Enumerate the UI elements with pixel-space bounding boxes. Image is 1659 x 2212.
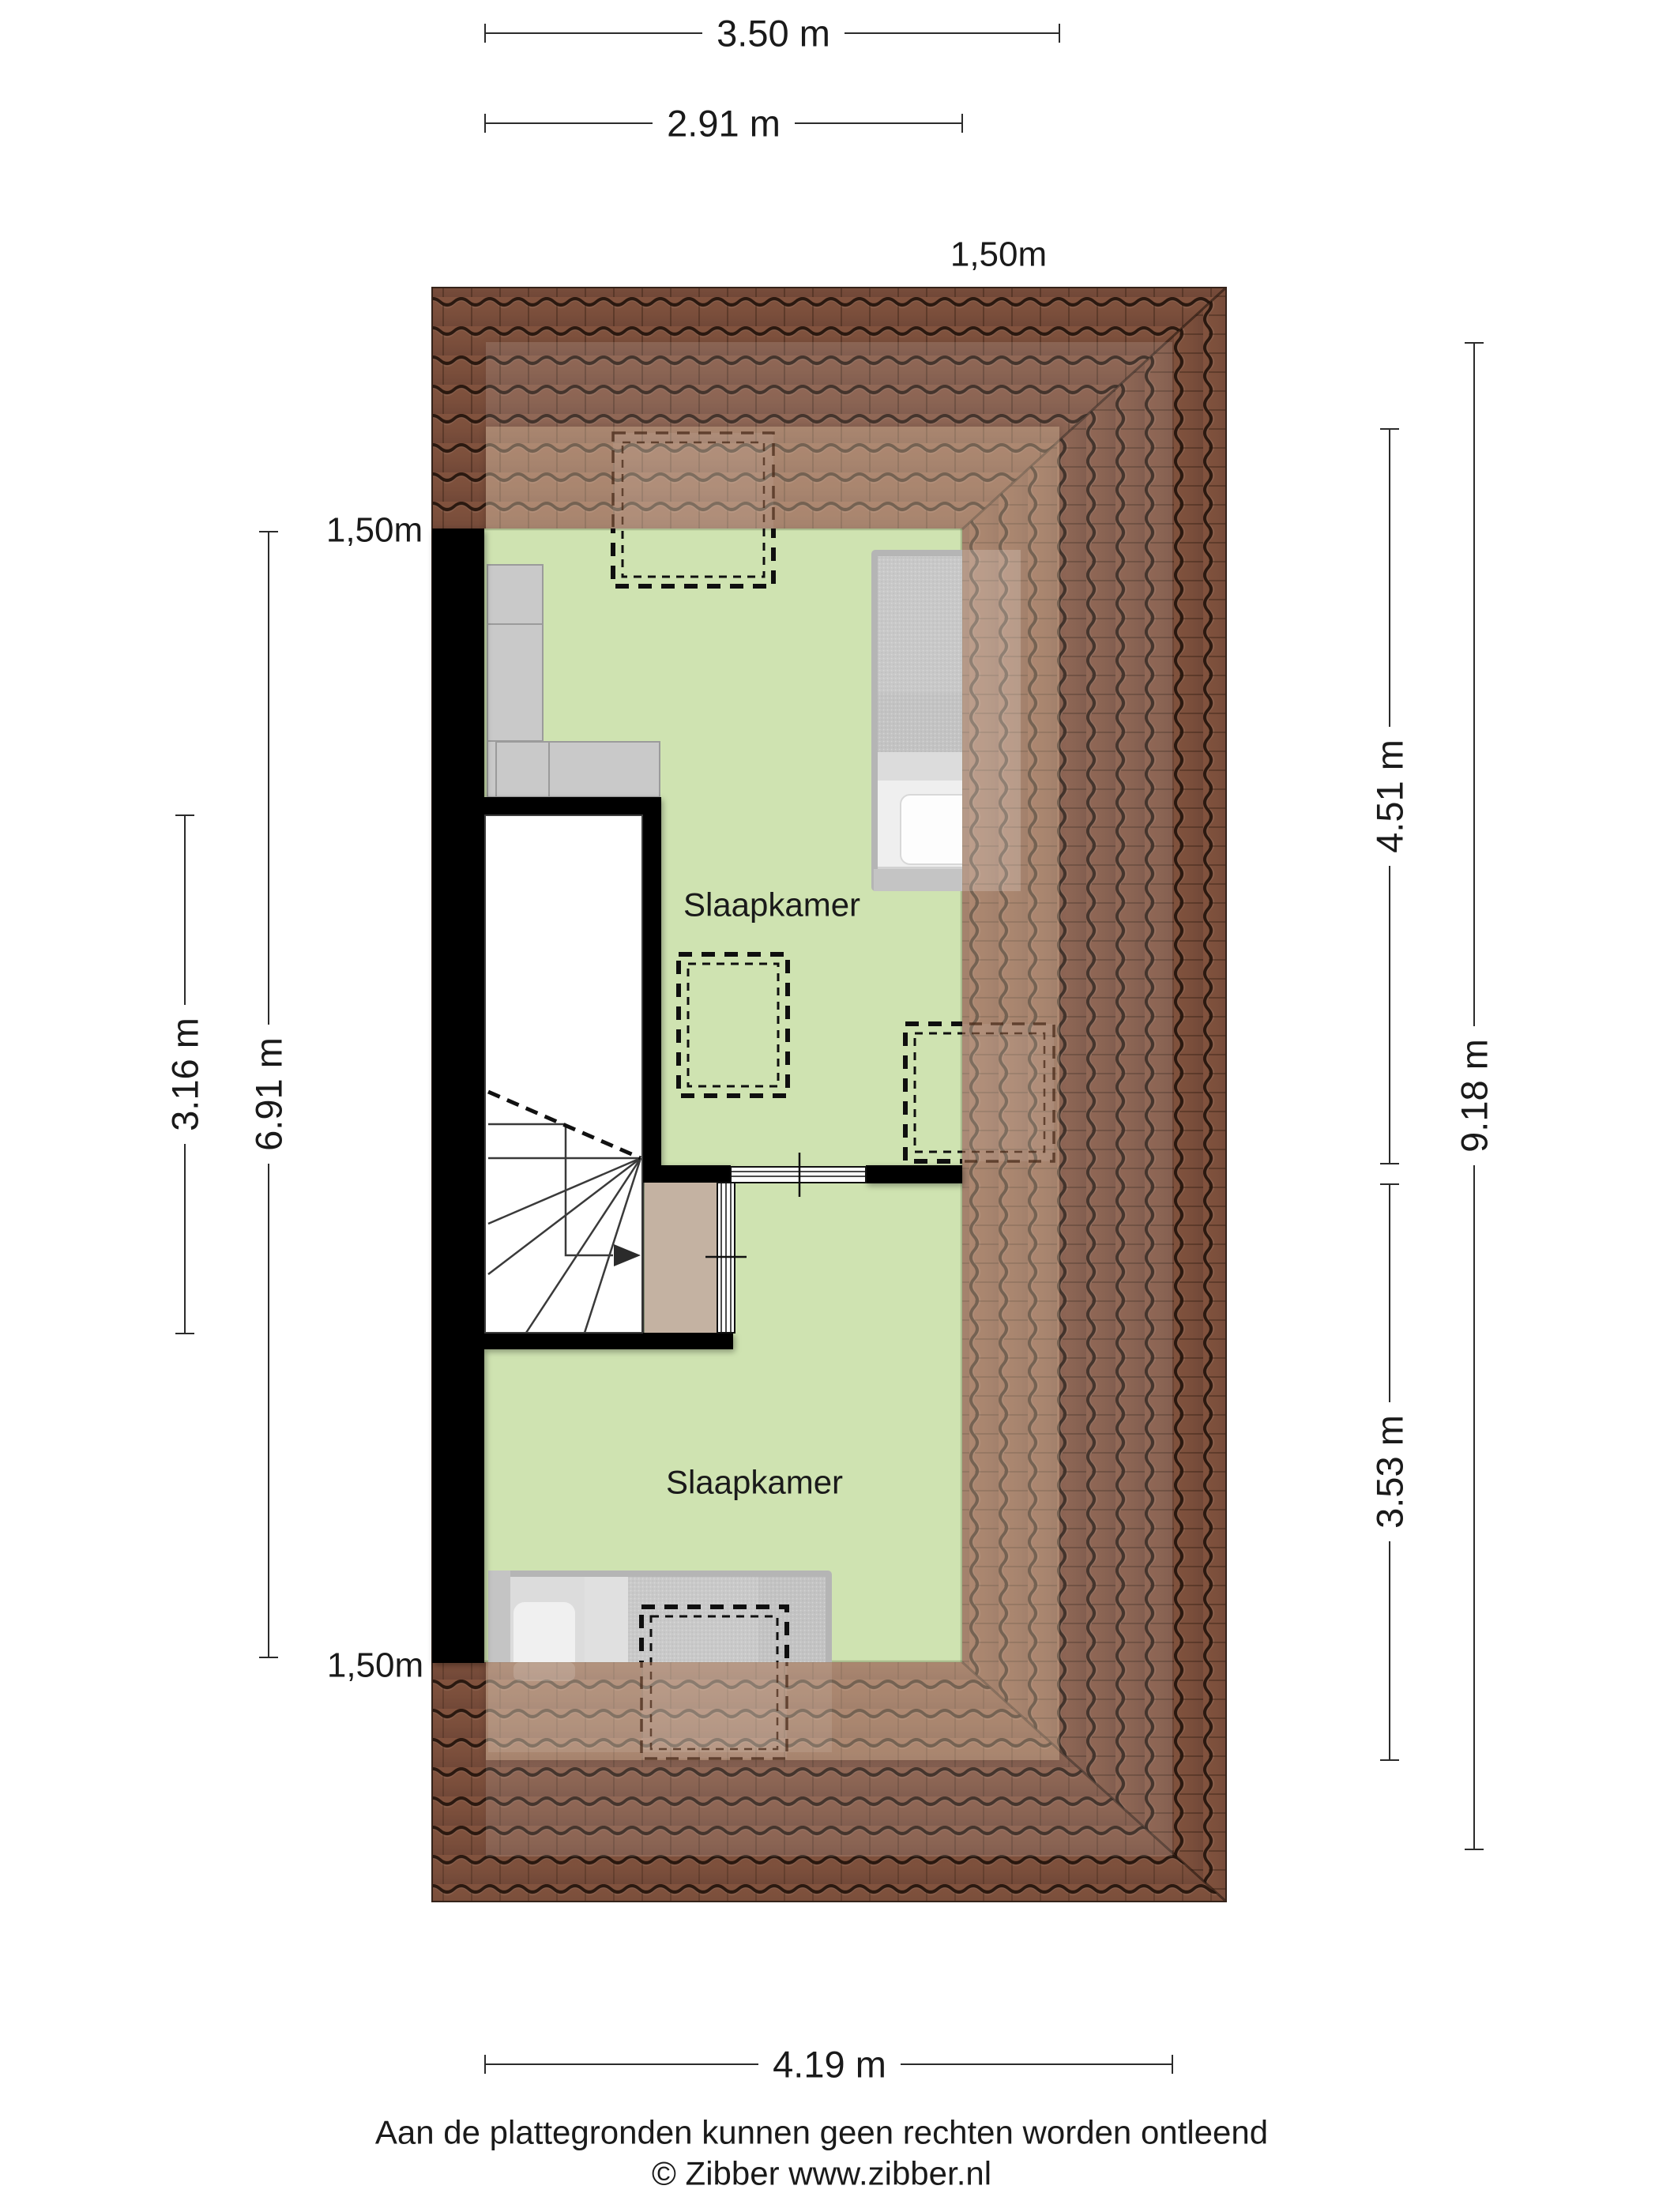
svg-text:2.91 m: 2.91 m bbox=[667, 103, 781, 145]
svg-text:1,50m: 1,50m bbox=[326, 511, 423, 550]
svg-text:3.16 m: 3.16 m bbox=[164, 1018, 206, 1131]
svg-text:Slaapkamer: Slaapkamer bbox=[683, 886, 860, 924]
svg-text:1,50m: 1,50m bbox=[327, 1646, 423, 1685]
svg-text:9.18 m: 9.18 m bbox=[1454, 1039, 1495, 1153]
svg-text:6.91 m: 6.91 m bbox=[248, 1037, 290, 1151]
svg-text:Slaapkamer: Slaapkamer bbox=[666, 1464, 843, 1501]
svg-text:3.50 m: 3.50 m bbox=[717, 13, 830, 55]
svg-text:4.19 m: 4.19 m bbox=[773, 2044, 886, 2086]
svg-text:1,50m: 1,50m bbox=[950, 235, 1047, 274]
svg-text:3.53 m: 3.53 m bbox=[1369, 1415, 1411, 1529]
svg-text:Aan de plattegronden kunnen ge: Aan de plattegronden kunnen geen rechten… bbox=[375, 2114, 1268, 2151]
svg-text:© Zibber www.zibber.nl: © Zibber www.zibber.nl bbox=[652, 2155, 991, 2192]
svg-text:4.51 m: 4.51 m bbox=[1369, 739, 1411, 853]
